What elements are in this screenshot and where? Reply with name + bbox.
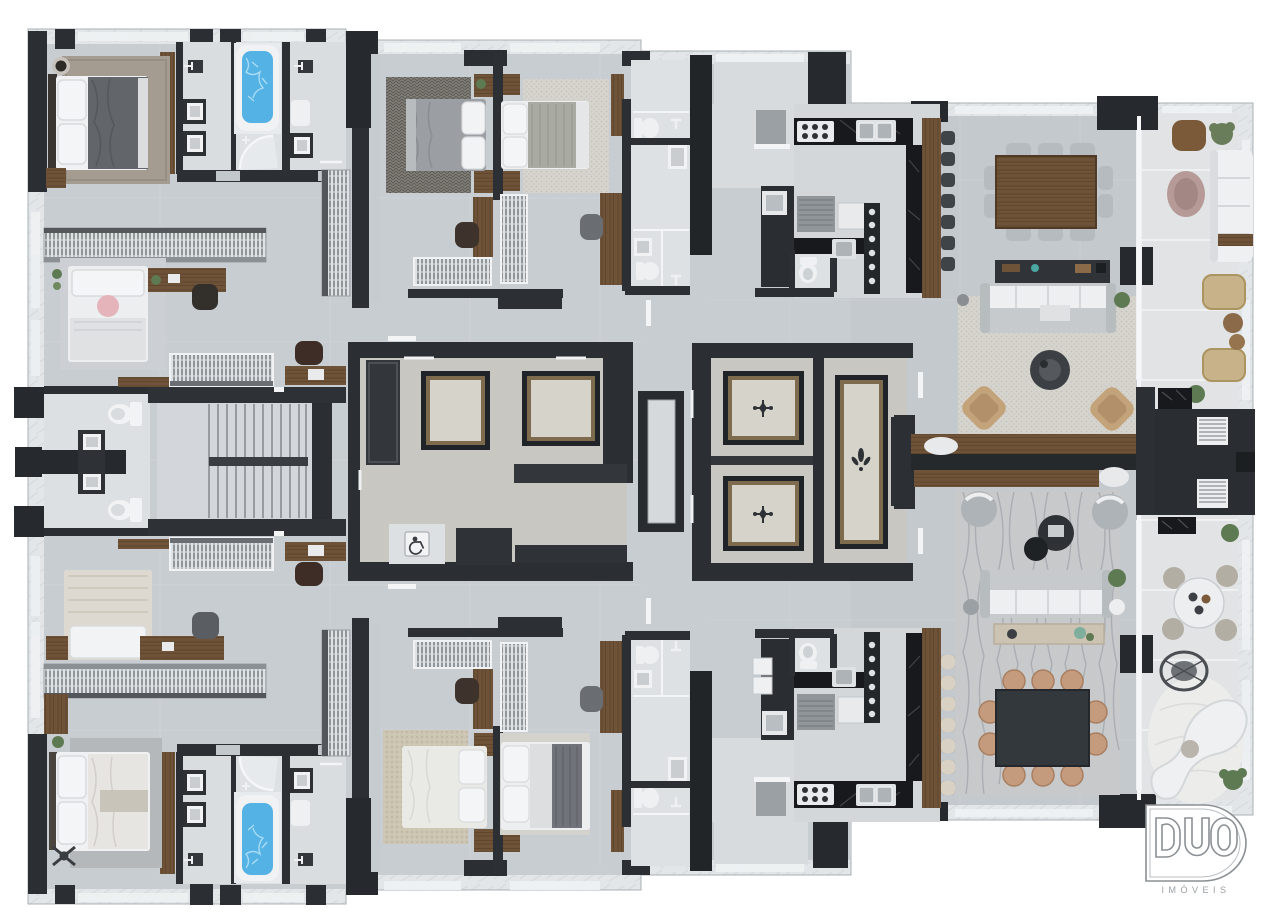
svg-text:IMÓVEIS: IMÓVEIS: [1161, 885, 1230, 895]
